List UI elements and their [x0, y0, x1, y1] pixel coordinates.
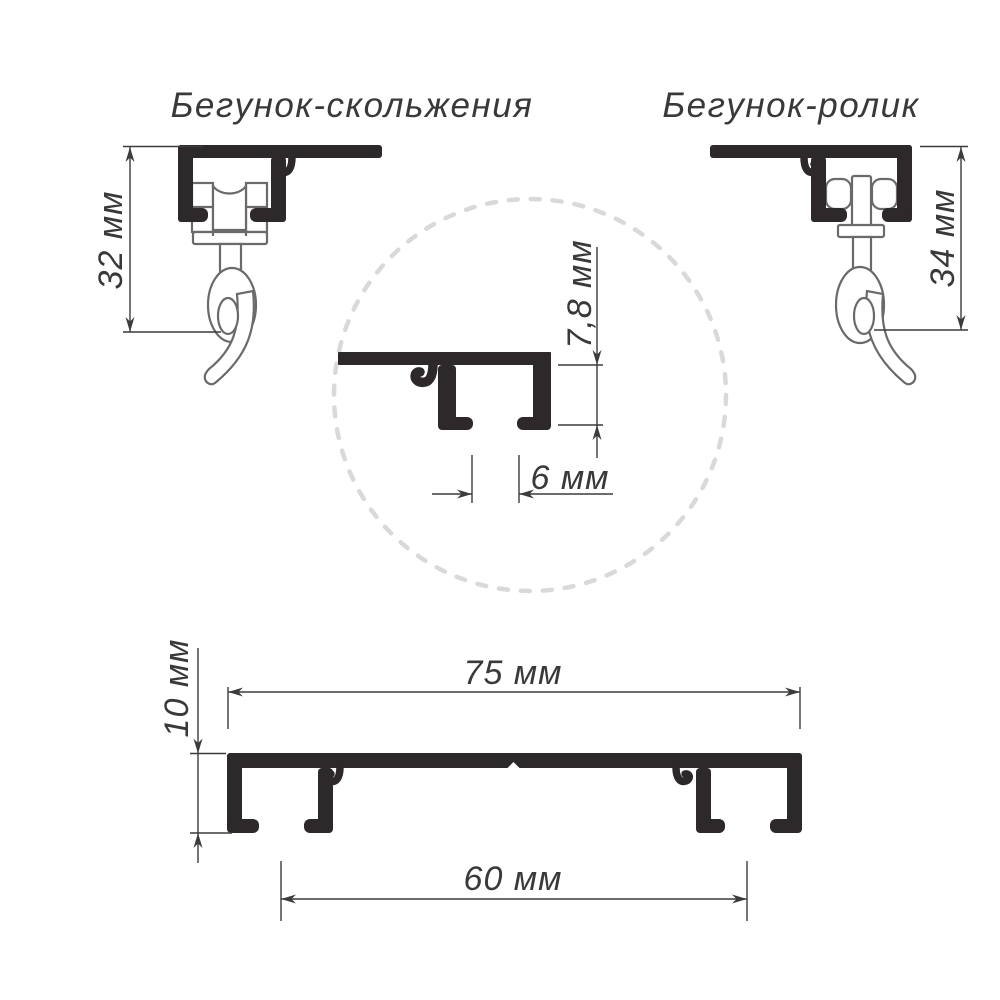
detail-magnifier-circle [334, 199, 726, 591]
hook-eyelet-opening [218, 298, 238, 334]
technical-drawing: Бегунок-скольжения Бегунок-ролик 32 мм 3… [0, 0, 1000, 1000]
dim-label-6mm: 6 мм [531, 459, 610, 497]
rail-hook-nub [415, 364, 433, 382]
detail-profile [338, 352, 551, 430]
channel-foot [227, 819, 259, 833]
dim-label-7-8mm: 7,8 мм [561, 239, 599, 348]
dim-75mm-lines [228, 687, 800, 729]
rail-bar [338, 352, 551, 365]
detail-profile-figure [338, 352, 551, 430]
glider-lower-plate [193, 232, 267, 244]
dim-label-75mm: 75 мм [464, 654, 563, 692]
title-runner-glide: Бегунок-скольжения [171, 86, 534, 125]
dim-label-10mm: 10 мм [158, 639, 196, 738]
full-profile-figure [227, 753, 802, 833]
dimension-arrowheads [126, 147, 966, 904]
glider-wheel [213, 186, 246, 230]
channel-foot [882, 208, 912, 222]
drawing-canvas: Бегунок-скольжения Бегунок-ролик 32 мм 3… [0, 0, 1000, 1000]
rail-bar [178, 145, 382, 158]
roller-runner-figure [710, 145, 915, 384]
rail-hook-nub [676, 767, 689, 781]
roller-lower-plate [838, 225, 884, 237]
dim-10mm-lines [190, 648, 232, 863]
channel-foot [178, 208, 208, 222]
channel-foot [770, 819, 802, 833]
channel-foot [811, 208, 847, 222]
roller-wheel [826, 179, 851, 209]
arrow [457, 490, 534, 499]
channel-foot [696, 819, 725, 833]
channel-foot [250, 208, 286, 222]
channel-foot [304, 819, 333, 833]
dim-label-60mm: 60 мм [464, 860, 563, 898]
dimension-lines [123, 147, 968, 922]
channel-foot [438, 417, 473, 430]
dim-label-34mm: 34 мм [924, 189, 962, 288]
channel-foot [517, 417, 551, 430]
hook-eyelet-opening [854, 298, 874, 334]
hook-tail [866, 291, 915, 384]
roller-wheel [872, 179, 897, 209]
dim-label-32mm: 32 мм [92, 191, 130, 290]
glide-runner-figure [178, 145, 382, 384]
title-runner-roller: Бегунок-ролик [662, 86, 919, 125]
rail-bar [710, 145, 912, 158]
